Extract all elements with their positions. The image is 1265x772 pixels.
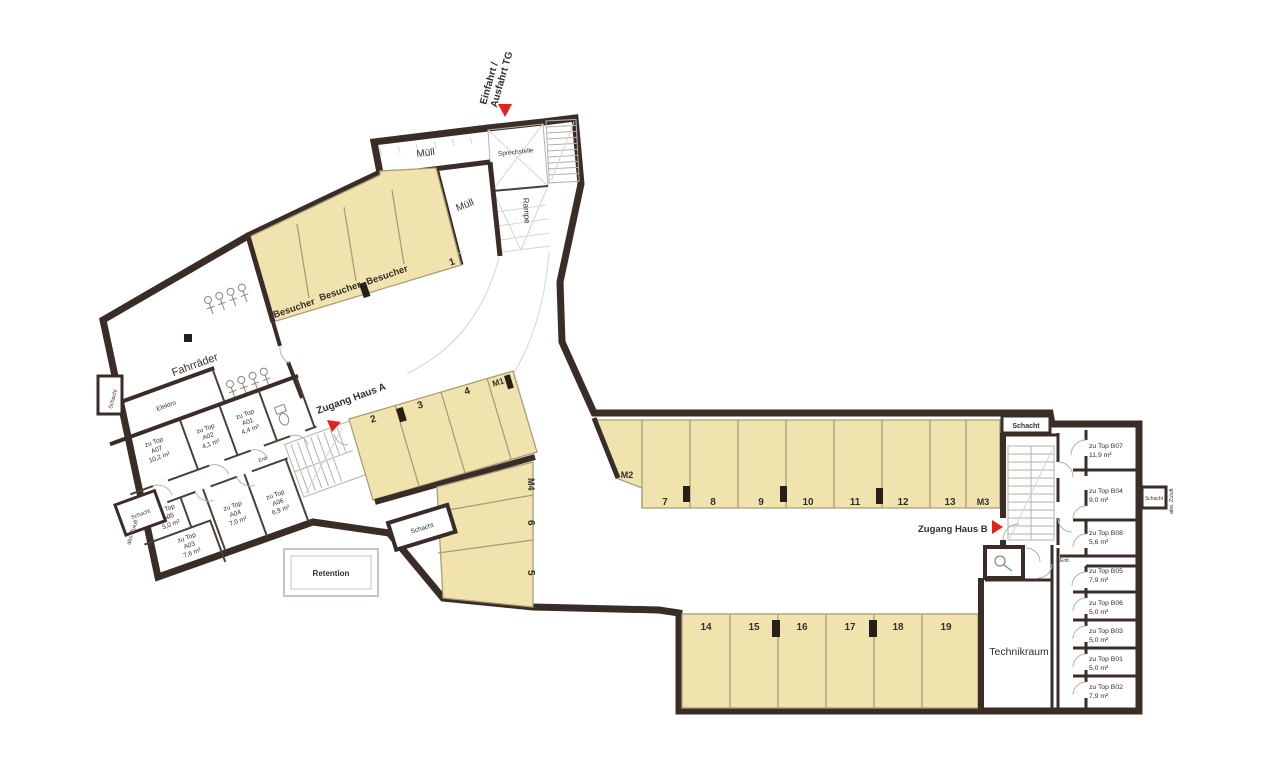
schacht-top-right: Schacht bbox=[1002, 416, 1050, 433]
zugang-haus-b-label: Zugang Haus B bbox=[918, 524, 988, 535]
room-b05-area: 7,9 m² bbox=[1089, 577, 1109, 584]
schacht-right-label: Schacht bbox=[1145, 496, 1164, 502]
stall-row-lower bbox=[682, 614, 978, 708]
column bbox=[780, 486, 787, 502]
equipment-room bbox=[985, 547, 1023, 578]
room-b07-name: zu Top B07 bbox=[1089, 443, 1123, 450]
stall-label-10: 10 bbox=[802, 497, 814, 508]
stall-label-16: 16 bbox=[796, 622, 808, 633]
schacht-right-outside: Schacht bbox=[1142, 487, 1166, 508]
room-b08-area: 5,6 m² bbox=[1089, 539, 1109, 546]
column bbox=[683, 486, 690, 502]
stall-label-7: 7 bbox=[662, 497, 668, 508]
room-b02-name: zu Top B02 bbox=[1089, 684, 1123, 691]
room-b05-name: zu Top B05 bbox=[1089, 568, 1123, 575]
stall-label-11: 11 bbox=[850, 497, 861, 508]
entl-label-right: Entl. bbox=[1060, 558, 1070, 564]
stall-label-13: 13 bbox=[944, 497, 956, 508]
muell-top-label: Müll bbox=[416, 147, 436, 160]
floor-plan: Einfahrt / Ausfahrt TG Sprechstelle Ramp… bbox=[0, 0, 1265, 772]
room-b04-area: 9,0 m² bbox=[1089, 497, 1109, 504]
room-b06-area: 5,0 m² bbox=[1089, 609, 1109, 616]
room-b02-area: 7,9 m² bbox=[1089, 693, 1109, 700]
stall-label-m3: M3 bbox=[977, 497, 990, 507]
stall-label-5: 5 bbox=[525, 570, 536, 576]
stall-label-18: 18 bbox=[892, 622, 904, 633]
column bbox=[184, 334, 192, 342]
room-b04-name: zu Top B04 bbox=[1089, 488, 1123, 495]
room-b03-name: zu Top B03 bbox=[1089, 628, 1123, 635]
stall-label-m2: M2 bbox=[621, 470, 634, 480]
room-b01-area: 5,0 m² bbox=[1089, 665, 1109, 672]
technikraum-label: Technikraum bbox=[989, 646, 1049, 658]
room-b07-area: 11,9 m² bbox=[1089, 452, 1112, 459]
room-b01-name: zu Top B01 bbox=[1089, 656, 1123, 663]
schacht-top-right-label: Schacht bbox=[1012, 423, 1040, 430]
stall-label-m4: M4 bbox=[526, 478, 536, 491]
stall-label-6: 6 bbox=[525, 520, 536, 526]
stall-row-upper bbox=[594, 420, 1000, 508]
room-b03-area: 5,0 m² bbox=[1089, 637, 1109, 644]
abs-zuluft-right-label: abs. Zuluft bbox=[1169, 488, 1175, 514]
stall-label-12: 12 bbox=[897, 497, 909, 508]
stall-label-19: 19 bbox=[940, 622, 952, 633]
stall-label-9: 9 bbox=[758, 497, 764, 508]
stall-label-14: 14 bbox=[700, 622, 712, 633]
stall-label-8: 8 bbox=[710, 497, 716, 508]
column bbox=[876, 488, 883, 504]
room-b06-name: zu Top B06 bbox=[1089, 600, 1123, 607]
column bbox=[869, 620, 877, 637]
stall-row-14-19: 14 15 16 17 18 19 bbox=[682, 614, 978, 708]
room-b08-name: zu Top B08 bbox=[1089, 530, 1123, 537]
stall-row-m2-m3: M2 7 8 9 10 11 12 13 M3 bbox=[594, 418, 1000, 508]
stall-label-15: 15 bbox=[748, 622, 760, 633]
schacht-left-upper: Schacht bbox=[98, 376, 122, 414]
retention-basin: Retention bbox=[284, 549, 378, 596]
stall-label-17: 17 bbox=[844, 622, 856, 633]
floor-plan-page: Einfahrt / Ausfahrt TG Sprechstelle Ramp… bbox=[0, 0, 1265, 772]
retention-label: Retention bbox=[313, 569, 350, 578]
column bbox=[772, 620, 780, 637]
ramp-label: Rampe bbox=[521, 198, 532, 225]
